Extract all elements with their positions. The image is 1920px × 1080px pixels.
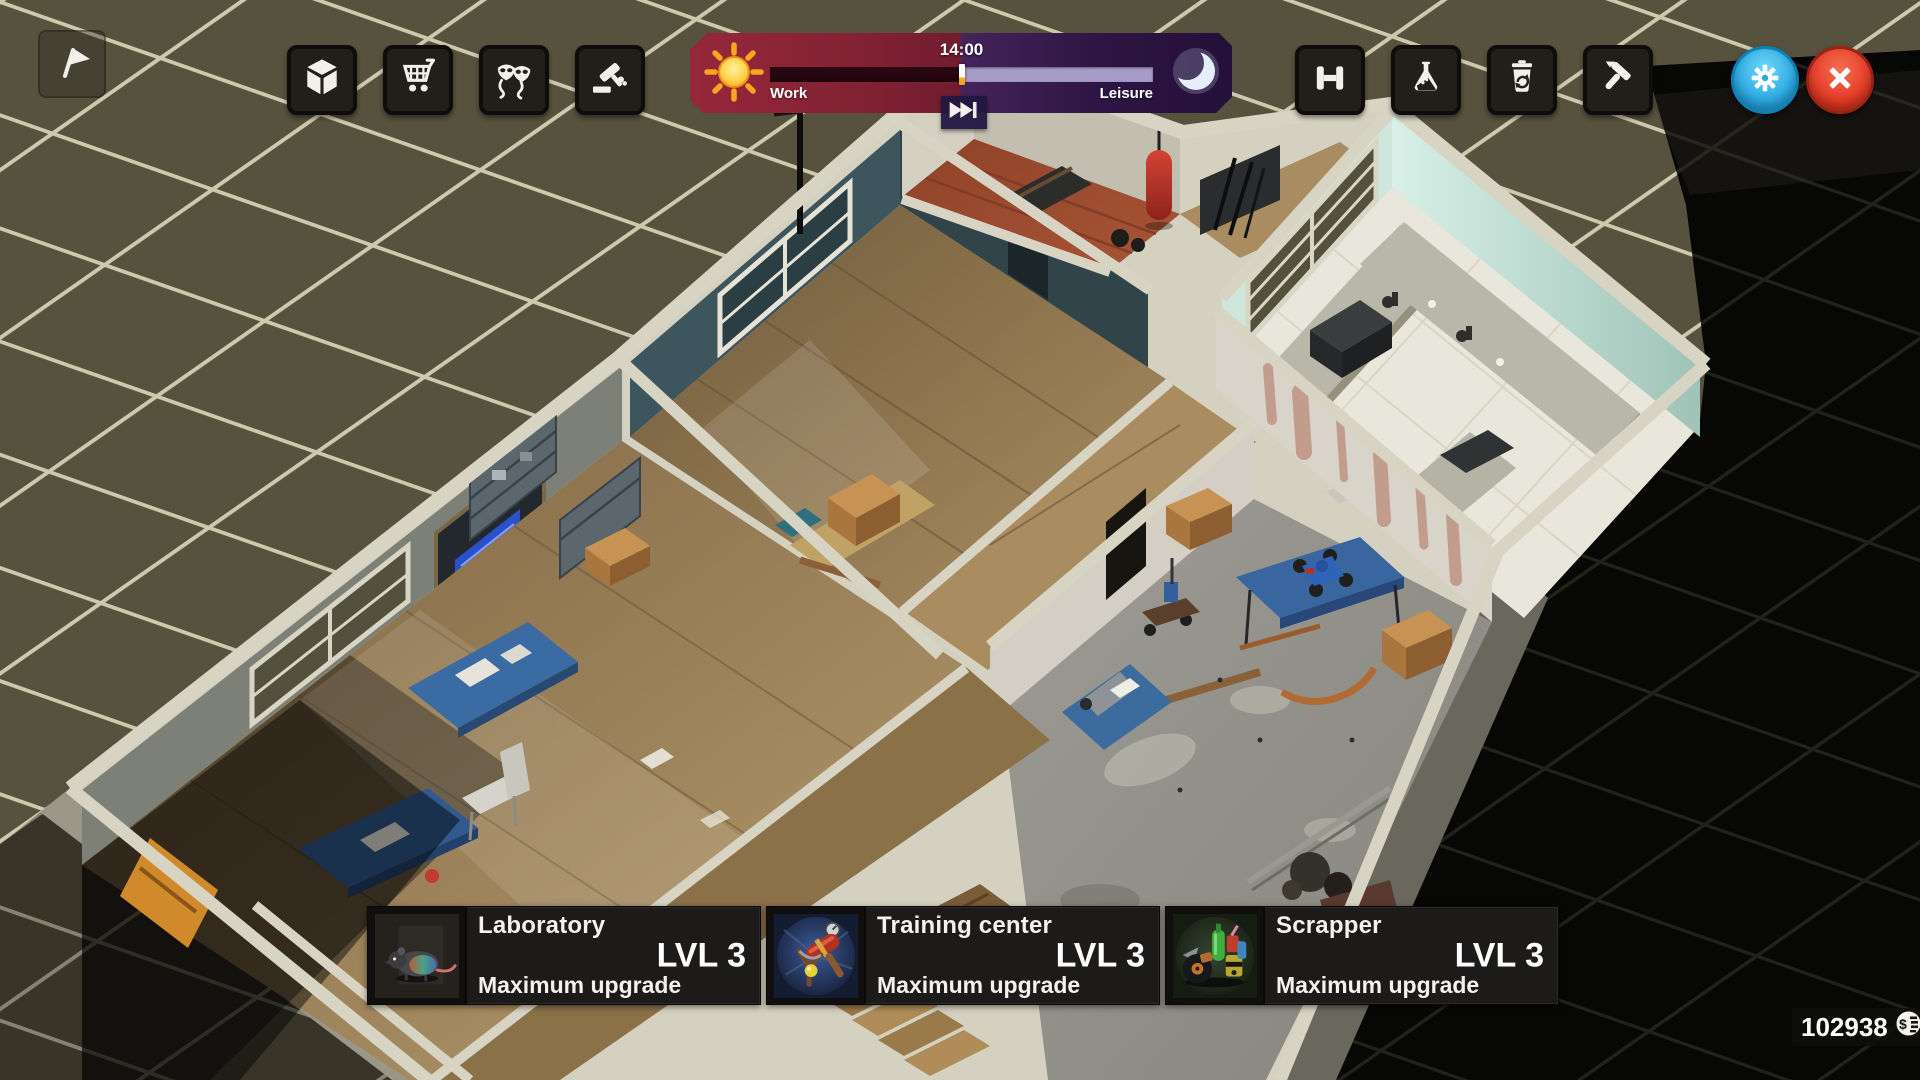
flag-icon <box>52 42 92 87</box>
mallet-slingshot-icon <box>767 907 866 1004</box>
close-icon <box>1823 61 1857 100</box>
leisure-label: Leisure <box>1100 85 1153 102</box>
currency-amount: 102938 <box>1801 1012 1888 1043</box>
close-button[interactable] <box>1806 46 1874 114</box>
panel-status: Maximum upgrade <box>877 972 1080 999</box>
panel-title: Training center <box>877 912 1052 940</box>
time-progress-fill <box>770 67 962 82</box>
dumbbell-icon <box>1306 54 1354 107</box>
settings-button[interactable] <box>1731 46 1799 114</box>
rat-icon <box>368 907 467 1004</box>
panel-scrapper[interactable]: Scrapper LVL 3 Maximum upgrade <box>1165 906 1559 1005</box>
coin-icon: $ <box>1895 1010 1920 1044</box>
panel-level: LVL 3 <box>1455 936 1544 975</box>
toolbar-right <box>1295 45 1653 115</box>
auction-button[interactable] <box>575 45 645 115</box>
skip-forward-button[interactable] <box>941 96 987 129</box>
game-screen: 14:00 Work Leisure <box>0 0 1920 1080</box>
toolbar-left <box>287 45 645 115</box>
flag-button[interactable] <box>38 30 106 98</box>
disguise-button[interactable] <box>479 45 549 115</box>
skip-forward-icon <box>947 99 981 126</box>
shop-button[interactable] <box>383 45 453 115</box>
time-label: 14:00 <box>940 40 983 60</box>
sun-icon <box>702 40 766 109</box>
storage-button[interactable] <box>287 45 357 115</box>
panel-title: Laboratory <box>478 912 605 940</box>
work-label: Work <box>770 85 807 102</box>
panel-training-center[interactable]: Training center LVL 3 Maximum upgrade <box>766 906 1160 1005</box>
currency-display: 102938 $ <box>1792 1008 1920 1046</box>
panel-level: LVL 3 <box>657 936 746 975</box>
panel-title: Scrapper <box>1276 912 1382 940</box>
junk-pile-icon <box>1166 907 1265 1004</box>
gear-icon <box>1747 60 1783 101</box>
scrapper-button[interactable] <box>1487 45 1557 115</box>
moon-icon <box>1168 43 1224 104</box>
gavel-icon <box>586 54 634 107</box>
build-button[interactable] <box>1583 45 1653 115</box>
svg-text:$: $ <box>1899 1016 1907 1032</box>
room-panels: Laboratory LVL 3 Maximum upgrade <box>367 906 1559 1005</box>
panel-status: Maximum upgrade <box>478 972 681 999</box>
laboratory-button[interactable] <box>1391 45 1461 115</box>
recycle-bin-icon <box>1498 54 1546 107</box>
masks-icon <box>490 54 538 107</box>
time-marker[interactable] <box>959 64 965 85</box>
time-track[interactable]: 14:00 <box>770 67 1153 82</box>
cube-icon <box>298 54 346 107</box>
panel-level: LVL 3 <box>1056 936 1145 975</box>
panel-status: Maximum upgrade <box>1276 972 1479 999</box>
training-button[interactable] <box>1295 45 1365 115</box>
hammer-icon <box>1594 54 1642 107</box>
cart-icon <box>394 54 442 107</box>
panel-laboratory[interactable]: Laboratory LVL 3 Maximum upgrade <box>367 906 761 1005</box>
flask-icon <box>1402 54 1450 107</box>
